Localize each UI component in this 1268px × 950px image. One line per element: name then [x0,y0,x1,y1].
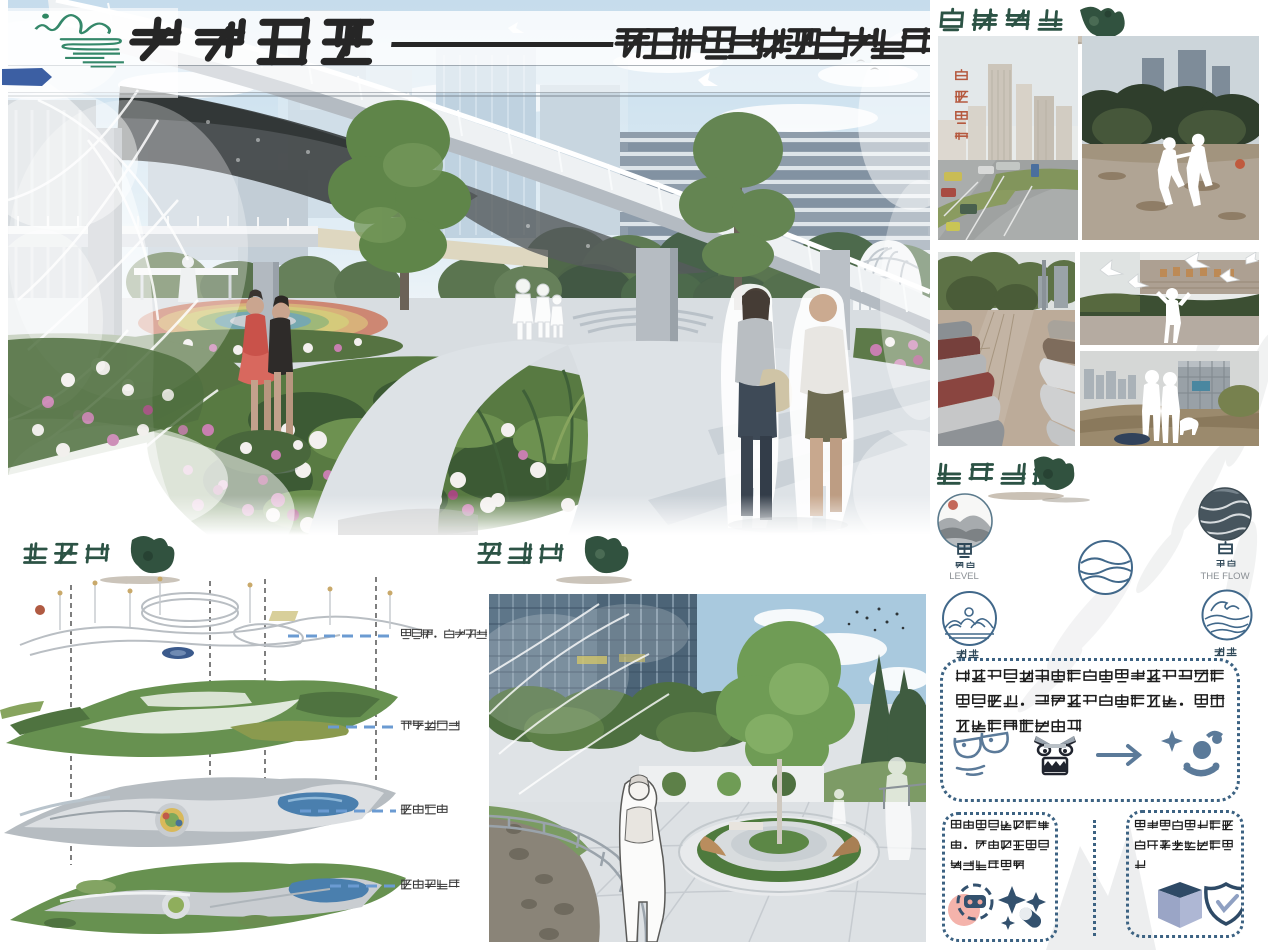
svg-text:LEVEL: LEVEL [949,571,979,582]
svg-text:THE FLOW: THE FLOW [1200,571,1249,582]
